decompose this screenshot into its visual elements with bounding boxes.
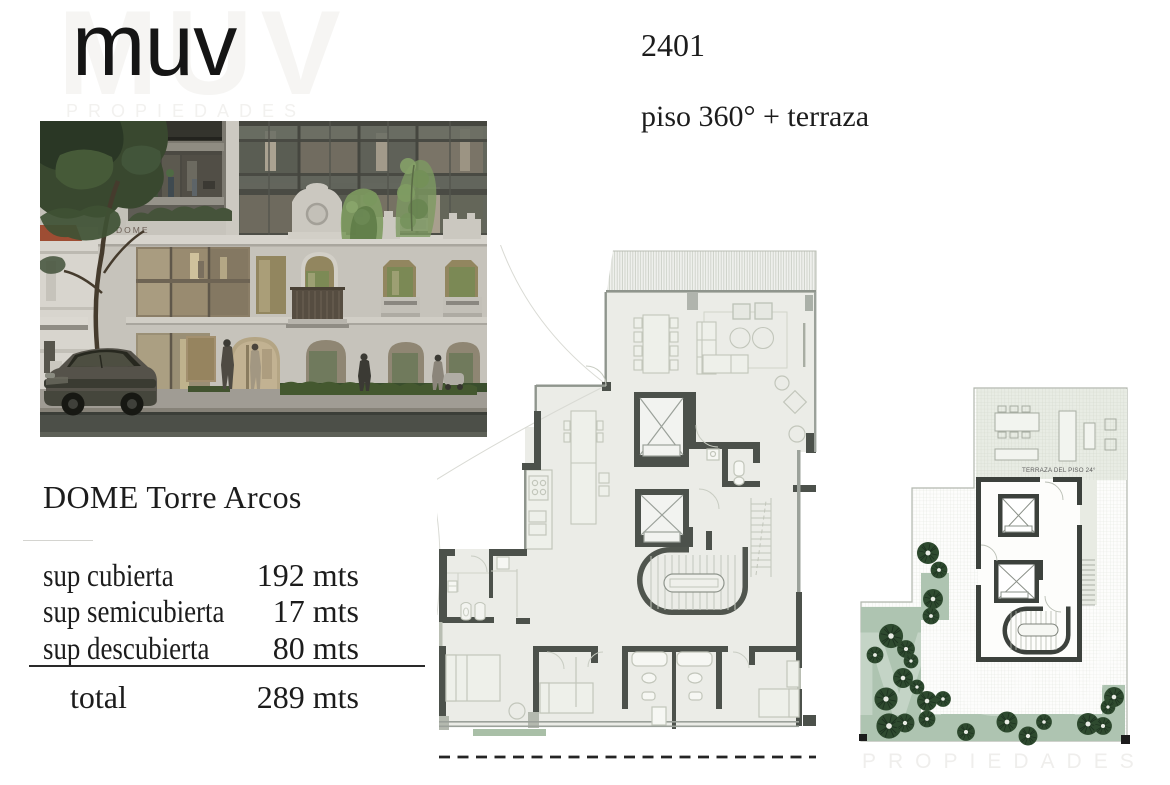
svg-text:TERRAZA DEL PISO 24°: TERRAZA DEL PISO 24° xyxy=(1022,467,1096,474)
svg-text:DOME: DOME xyxy=(116,225,150,235)
